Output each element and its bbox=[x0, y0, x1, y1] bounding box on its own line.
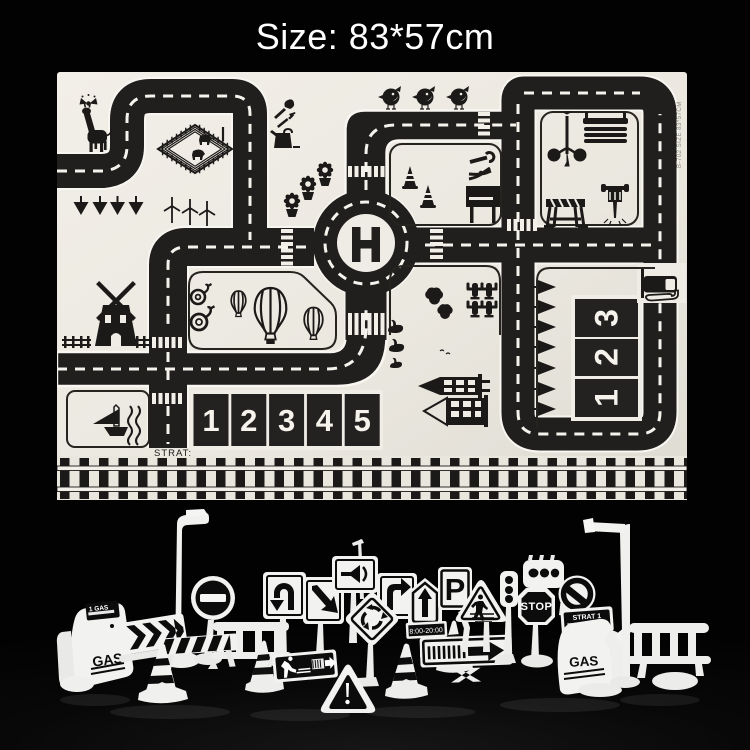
svg-text:3: 3 bbox=[589, 309, 625, 327]
svg-text:5: 5 bbox=[354, 403, 371, 438]
svg-text:STRAT:: STRAT: bbox=[154, 448, 192, 459]
svg-text:B-702 SIZE 83*57CM: B-702 SIZE 83*57CM bbox=[677, 101, 683, 168]
svg-text:STOP: STOP bbox=[521, 601, 553, 613]
svg-text:2: 2 bbox=[240, 403, 257, 438]
svg-text:2: 2 bbox=[589, 348, 625, 366]
svg-text:4: 4 bbox=[316, 403, 334, 438]
svg-text:P: P bbox=[445, 572, 466, 607]
svg-text:3: 3 bbox=[278, 403, 295, 438]
svg-text:1: 1 bbox=[202, 403, 219, 438]
svg-text:GAS: GAS bbox=[569, 653, 599, 670]
svg-text:1: 1 bbox=[589, 389, 625, 407]
